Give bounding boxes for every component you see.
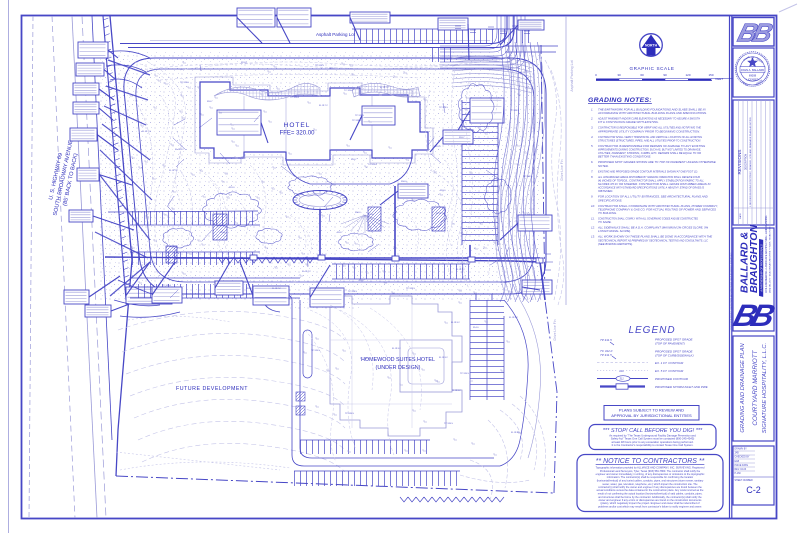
svg-text:TP 319.5: TP 319.5 xyxy=(180,82,190,84)
svg-text:FL 313.2: FL 313.2 xyxy=(452,390,461,392)
svg-text:ISSUE DATE: ISSUE DATE xyxy=(735,464,749,467)
svg-text:318.7: 318.7 xyxy=(337,232,343,234)
svg-text:5.: 5. xyxy=(591,144,594,148)
svg-text:(903) 581-2677 • 4545 SIGNATUR: (903) 581-2677 • 4545 SIGNATURE DRIVE • … xyxy=(768,226,771,293)
svg-text:LEGEND: LEGEND xyxy=(628,325,675,336)
svg-text:TP 319.5: TP 319.5 xyxy=(406,288,416,290)
svg-text:TP 319.5: TP 319.5 xyxy=(348,291,358,293)
svg-text:SPECIFICATIONS.: SPECIFICATIONS. xyxy=(598,198,622,202)
svg-text:PLANS SUBJECT TO REVIEW AND: PLANS SUBJECT TO REVIEW AND xyxy=(619,408,684,413)
svg-text:319.0: 319.0 xyxy=(241,62,247,64)
svg-text:problems and/or cost which may: problems and/or cost which may result fr… xyxy=(598,505,702,509)
svg-text:APPROPRIATE UTILITY COMPANY PR: APPROPRIATE UTILITY COMPANY PRIOR TO BEG… xyxy=(597,129,700,133)
svg-text:HOTEL: HOTEL xyxy=(284,122,311,129)
svg-text:LONGITUDINAL SLOPE).: LONGITUDINAL SLOPE). xyxy=(598,229,631,233)
svg-text:DESCRIPTION: DESCRIPTION xyxy=(745,154,748,171)
svg-text:FL 313.2: FL 313.2 xyxy=(509,317,518,319)
svg-text:318.7: 318.7 xyxy=(459,137,465,139)
svg-text:(TOP OF PAVEMENT): (TOP OF PAVEMENT) xyxy=(655,342,685,346)
svg-text:318.7: 318.7 xyxy=(207,101,213,103)
svg-text:TP 319.5: TP 319.5 xyxy=(500,282,510,284)
svg-text:CIVIL ENGINEERING • LANDSCAPE: CIVIL ENGINEERING • LANDSCAPE ARCHITECTU… xyxy=(765,215,768,293)
svg-text:12.: 12. xyxy=(591,226,595,230)
svg-text:GRAPHIC SCALE: GRAPHIC SCALE xyxy=(629,66,674,71)
svg-text:FUTURE DEVELOPMENT: FUTURE DEVELOPMENT xyxy=(176,386,248,392)
svg-text:319.0: 319.0 xyxy=(220,232,226,234)
svg-text:REVISIONS: REVISIONS xyxy=(737,149,742,174)
svg-text:2.: 2. xyxy=(590,117,594,121)
svg-text:314.0: 314.0 xyxy=(473,327,479,329)
svg-text:NORTH: NORTH xyxy=(645,44,658,48)
svg-text:CONSTRUCTION SHALL COMPLY WITH: CONSTRUCTION SHALL COMPLY WITH ALL GOVER… xyxy=(598,217,698,221)
svg-text:JAB: JAB xyxy=(735,452,740,455)
svg-text:60: 60 xyxy=(640,73,644,77)
svg-text:4.: 4. xyxy=(591,135,594,139)
svg-text:PROPOSED CONTOUR: PROPOSED CONTOUR xyxy=(655,377,689,381)
svg-text:3.: 3. xyxy=(591,126,594,130)
svg-text:GRADING AND DRAINAGE PLAN: GRADING AND DRAINAGE PLAN xyxy=(740,343,746,433)
svg-text:BETTER THAN EXISTING CONDITION: BETTER THAN EXISTING CONDITIONS. xyxy=(598,155,651,159)
svg-text:Drive Line Fin: Drive Line Fin xyxy=(553,319,557,340)
svg-text:APPROVAL BY JURISDICTIONAL ENT: APPROVAL BY JURISDICTIONAL ENTITIES xyxy=(611,413,692,418)
svg-text:TP 315.5: TP 315.5 xyxy=(444,423,454,425)
svg-text:TC 320.0: TC 320.0 xyxy=(344,90,354,92)
svg-text:FL 317.2: FL 317.2 xyxy=(175,149,184,151)
svg-text:8.: 8. xyxy=(591,175,594,179)
svg-text:COURTYARD MARRIOTT: COURTYARD MARRIOTT xyxy=(752,349,759,425)
svg-text:LICENSED: LICENSED xyxy=(747,79,759,82)
svg-text:310: 310 xyxy=(619,369,624,373)
svg-text:FL 317.2: FL 317.2 xyxy=(491,186,500,188)
svg-text:** NOTICE TO CONTRACTORS: ** NOTICE TO CONTRACTORS ** xyxy=(596,458,705,465)
svg-text:10.: 10. xyxy=(591,204,595,208)
svg-text:1 REVISED BUILDING FOOTPRINT,: 1 REVISED BUILDING FOOTPRINT, GRADING, S… xyxy=(749,117,752,207)
svg-text:318.7: 318.7 xyxy=(351,159,357,161)
svg-text:TP 315.5: TP 315.5 xyxy=(460,373,470,375)
svg-text:6.: 6. xyxy=(591,160,594,164)
svg-text:69008: 69008 xyxy=(749,73,757,77)
svg-text:CHECKED BY: CHECKED BY xyxy=(735,457,750,459)
svg-text:TC 320.0: TC 320.0 xyxy=(290,97,300,99)
svg-text:TP 311.5: TP 311.5 xyxy=(600,338,612,342)
svg-text:C-2: C-2 xyxy=(746,485,761,495)
svg-text:CIVIL ENGINEERING-LANDSCAPE AR: CIVIL ENGINEERING-LANDSCAPE ARCHITECTURE… xyxy=(730,252,733,330)
svg-text:*** STOP! CALL BEFORE YOU D: *** STOP! CALL BEFORE YOU DIG! *** xyxy=(603,428,703,434)
svg-text:Drive Line Fin: Drive Line Fin xyxy=(560,159,564,180)
svg-text:FL 317.2: FL 317.2 xyxy=(520,72,529,74)
svg-text:FL 317.2: FL 317.2 xyxy=(142,131,151,133)
svg-text:BRAUGHTON: BRAUGHTON xyxy=(748,225,760,293)
svg-text:FL 317.2: FL 317.2 xyxy=(380,87,389,89)
svg-text:Asphalt Parking Lot: Asphalt Parking Lot xyxy=(570,60,574,91)
svg-text:TP 315.5: TP 315.5 xyxy=(345,413,355,415)
svg-text:GRADING NOTES:: GRADING NOTES: xyxy=(588,97,652,104)
svg-text:It is the Contractor's respons: It is the Contractor's responsibility to… xyxy=(612,443,694,447)
svg-text:A PARTNERSHIP OF PROFESSIONALS: A PARTNERSHIP OF PROFESSIONALS xyxy=(759,244,763,293)
svg-text:EX. 5 FT. CONTOUR: EX. 5 FT. CONTOUR xyxy=(655,369,684,373)
svg-text:EXISTING AND PROPOSED GRADE CO: EXISTING AND PROPOSED GRADE CONTOUR INTE… xyxy=(598,169,698,173)
svg-text:TP 311.5: TP 311.5 xyxy=(600,353,612,357)
svg-text:90: 90 xyxy=(663,73,667,77)
svg-text:FL 317.2: FL 317.2 xyxy=(319,105,328,107)
svg-text:11.: 11. xyxy=(591,217,595,221)
svg-text:FL 317.2: FL 317.2 xyxy=(169,170,178,172)
svg-text:REV. 02-03: REV. 02-03 xyxy=(735,469,747,471)
svg-text:TP 319.5: TP 319.5 xyxy=(355,115,365,117)
svg-text:FL 313.2: FL 313.2 xyxy=(451,322,460,324)
svg-text:30: 30 xyxy=(617,73,621,77)
svg-text:P-160: P-160 xyxy=(735,473,742,475)
svg-text:13.: 13. xyxy=(591,235,595,239)
svg-text:TP 319.5: TP 319.5 xyxy=(510,110,520,112)
svg-text:TP 319.5: TP 319.5 xyxy=(439,107,449,109)
svg-text:319.0: 319.0 xyxy=(401,181,407,183)
svg-text:PROPOSED STORM INLET AND PIPE: PROPOSED STORM INLET AND PIPE xyxy=(655,385,709,389)
svg-text:ACCORDANCE WITH ARCHITECTURAL: ACCORDANCE WITH ARCHITECTURAL BUILDING P… xyxy=(597,111,707,115)
svg-text:319.0: 319.0 xyxy=(246,288,252,290)
svg-text:1.: 1. xyxy=(591,108,594,112)
svg-text:TP 315.5: TP 315.5 xyxy=(360,358,370,360)
svg-text:FL 313.2: FL 313.2 xyxy=(511,432,520,434)
svg-text:TC 320.0: TC 320.0 xyxy=(162,285,172,287)
svg-text:TP 319.5: TP 319.5 xyxy=(523,176,533,178)
svg-text:TP 319.5: TP 319.5 xyxy=(352,120,362,122)
svg-text:PROPOSED SPOT GRADES SHOWN ARE: PROPOSED SPOT GRADES SHOWN ARE TO TOP OF… xyxy=(598,160,716,164)
svg-text:7.: 7. xyxy=(591,169,594,173)
svg-text:EX. 1 FT. CONTOUR: EX. 1 FT. CONTOUR xyxy=(655,361,684,365)
svg-text:319.0: 319.0 xyxy=(440,190,446,192)
svg-text:150: 150 xyxy=(708,73,713,77)
svg-text:FL 317.2: FL 317.2 xyxy=(302,271,311,273)
svg-text:TO SAME.: TO SAME. xyxy=(598,220,612,224)
svg-text:SIGNATURE HOSPITALITY, L.L.C.: SIGNATURE HOSPITALITY, L.L.C. xyxy=(762,343,768,433)
svg-text:JOHN A. BALLARD: JOHN A. BALLARD xyxy=(741,68,765,72)
svg-text:TP 315.5: TP 315.5 xyxy=(311,350,321,352)
svg-text:318.7: 318.7 xyxy=(359,280,365,282)
svg-text:EAB: EAB xyxy=(735,460,740,463)
svg-text:ACCORDANCE WITH STANDARD SPECI: ACCORDANCE WITH STANDARD SPECIFICATIONS … xyxy=(597,186,704,190)
svg-text:319.0: 319.0 xyxy=(355,212,361,214)
svg-text:(SEE BORING REPORTS).: (SEE BORING REPORTS). xyxy=(598,242,633,246)
svg-text:NOTED.: NOTED. xyxy=(598,164,609,168)
svg-text:Asphalt Parking Lot: Asphalt Parking Lot xyxy=(316,32,356,37)
svg-text:TC 320.0: TC 320.0 xyxy=(368,164,378,166)
svg-text:FIT & CONTINUOUS GRADE WITH EX: FIT & CONTINUOUS GRADE WITH EXISTING. xyxy=(598,120,659,124)
svg-text:319.0: 319.0 xyxy=(368,214,374,216)
svg-text:318.7: 318.7 xyxy=(329,68,335,70)
svg-text:(TOP OF CURB/SIDEWALK): (TOP OF CURB/SIDEWALK) xyxy=(655,354,694,358)
svg-text:FL 313.2: FL 313.2 xyxy=(392,348,401,350)
svg-text:9.: 9. xyxy=(591,195,594,199)
svg-text:SHEET NUMBER: SHEET NUMBER xyxy=(735,480,754,482)
svg-text:319.0: 319.0 xyxy=(435,146,441,148)
svg-text:TO BUILDING.: TO BUILDING. xyxy=(598,211,617,215)
svg-text:311: 311 xyxy=(620,377,625,381)
svg-text:OBTAINED.: OBTAINED. xyxy=(598,189,613,193)
svg-text:TP 319.5: TP 319.5 xyxy=(315,65,325,67)
svg-text:120: 120 xyxy=(685,73,690,77)
svg-text:FFE= 320.00: FFE= 320.00 xyxy=(280,131,316,137)
svg-text:(UNDER DESIGN): (UNDER DESIGN) xyxy=(376,365,421,371)
svg-text:FL 313.2: FL 313.2 xyxy=(439,357,448,359)
svg-text:FL 317.2: FL 317.2 xyxy=(272,288,281,290)
svg-text:319.0: 319.0 xyxy=(229,187,235,189)
svg-text:FEET: FEET xyxy=(716,77,724,81)
svg-text:STRUCTURES (STRUCTURES, PIPES,: STRUCTURES (STRUCTURES, PIPES, AND ALL U… xyxy=(598,138,701,142)
svg-text:FL 317.2: FL 317.2 xyxy=(456,269,465,271)
svg-text:DRAWN BY: DRAWN BY xyxy=(735,448,748,451)
svg-text:DATE: DATE xyxy=(739,213,742,219)
